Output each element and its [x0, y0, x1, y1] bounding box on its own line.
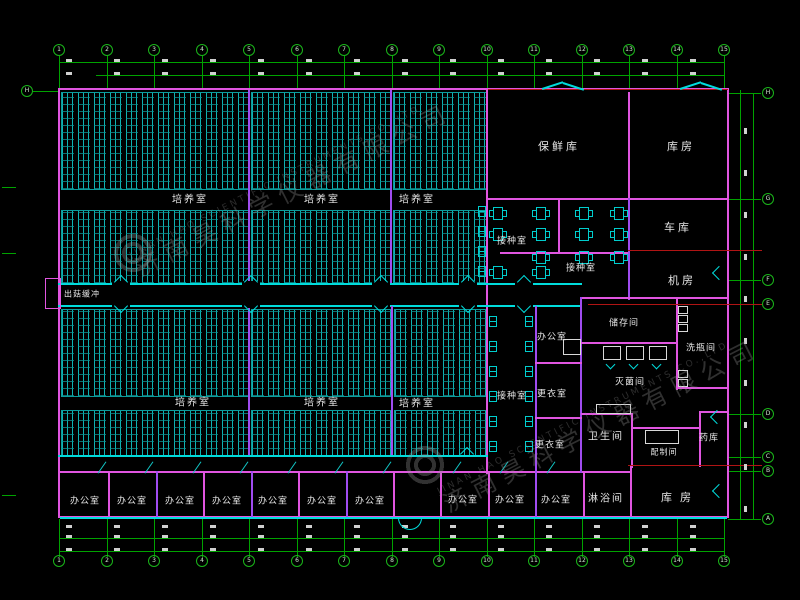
- table-icon: [493, 207, 503, 220]
- rack-hatch: [251, 309, 392, 397]
- wall: [628, 92, 630, 198]
- rack-hatch: [251, 210, 391, 284]
- room-label-office-small: 办公室: [537, 330, 567, 343]
- room-label-cultivation: 培养室: [172, 191, 208, 206]
- grid-line: [33, 91, 59, 92]
- room-label-cultivation: 培养室: [399, 395, 435, 410]
- grid-bubble-col: 1: [53, 44, 65, 56]
- table-icon: [579, 207, 589, 220]
- door-chevron-icon: [629, 360, 639, 370]
- grid-line: [2, 187, 16, 188]
- vestibule: [45, 278, 61, 309]
- grid-bubble-col: 4: [196, 555, 208, 567]
- wall: [630, 466, 632, 517]
- equipment-icon: [678, 306, 688, 314]
- grid-line: [59, 56, 60, 88]
- room-label-inoculation: 接种室: [566, 261, 596, 274]
- grid-bubble-col: 13: [623, 44, 635, 56]
- grid-bubble-col: 11: [528, 555, 540, 567]
- room-label-cultivation: 培养室: [175, 394, 211, 409]
- table-icon: [536, 207, 546, 220]
- corridor-line: [58, 283, 582, 285]
- rack-icon: [525, 366, 533, 377]
- rack-icon: [489, 391, 497, 402]
- grid-bubble-col: 9: [433, 555, 445, 567]
- door-chevron-icon: [712, 266, 726, 280]
- window-strip: [60, 517, 727, 519]
- dimension-line: [753, 94, 754, 519]
- wall: [156, 471, 158, 517]
- room-label-office: 办公室: [212, 494, 242, 507]
- rack-icon: [489, 341, 497, 352]
- dimension-text-row: [66, 59, 716, 62]
- door-chevron-icon: [606, 360, 616, 370]
- wall: [391, 306, 393, 457]
- entrance-arc-icon: [398, 518, 422, 530]
- rack-icon: [525, 316, 533, 327]
- wall: [727, 88, 729, 518]
- wall: [486, 88, 488, 474]
- room-label-office: 办公室: [355, 494, 385, 507]
- wall: [558, 198, 560, 254]
- rack-icon: [489, 366, 497, 377]
- room-label-storeroom-top: 库房: [667, 138, 695, 154]
- wall: [535, 362, 582, 364]
- room-label-office: 办公室: [541, 493, 571, 506]
- rack-hatch: [61, 410, 249, 457]
- rack-icon: [489, 416, 497, 427]
- grid-bubble-col: 10: [481, 44, 493, 56]
- room-label-medicine-store: 药库: [699, 431, 719, 444]
- table-icon: [536, 266, 546, 279]
- grid-bubble-col: 2: [101, 44, 113, 56]
- room-label-inoculation: 接种室: [497, 234, 527, 247]
- rack-icon: [478, 226, 486, 237]
- grid-line: [2, 495, 16, 496]
- grid-bubble-row: H: [21, 85, 33, 97]
- grid-line: [724, 519, 725, 557]
- grid-line: [724, 56, 725, 88]
- room-label-preparation: 配制间: [651, 447, 678, 458]
- cad-floor-plan: 1 2 3 4 5 6 7 8 9 10 11 12 13 14 15 1 2 …: [0, 0, 800, 600]
- wall-red: [628, 465, 762, 466]
- room-label-office: 办公室: [117, 494, 147, 507]
- wall: [583, 471, 585, 517]
- room-label-inoculation: 接种室: [497, 389, 527, 402]
- table-icon: [614, 228, 624, 241]
- room-label-office: 办公室: [307, 494, 337, 507]
- grid-bubble-col: 12: [576, 44, 588, 56]
- room-label-office: 办公室: [165, 494, 195, 507]
- dimension-line: [96, 75, 725, 76]
- grid-bubble-col: 15: [718, 555, 730, 567]
- rack-hatch: [393, 210, 487, 284]
- wall: [248, 306, 250, 457]
- room-label-office: 办公室: [70, 494, 100, 507]
- wall: [346, 471, 348, 517]
- wall: [500, 252, 628, 254]
- corridor-line: [58, 305, 582, 307]
- dimension-text-row: [66, 548, 721, 551]
- autoclave-icon: [649, 346, 667, 360]
- rack-hatch: [61, 309, 249, 397]
- grid-bubble-col: 6: [291, 44, 303, 56]
- rack-icon: [478, 206, 486, 217]
- grid-bubble-row: E: [762, 298, 774, 310]
- grid-bubble-row: G: [762, 193, 774, 205]
- wall: [535, 471, 537, 517]
- table-icon: [614, 251, 624, 264]
- grid-bubble-row: H: [762, 87, 774, 99]
- grid-bubble-col: 3: [148, 555, 160, 567]
- wall-red: [488, 89, 728, 90]
- grid-bubble-col: 11: [528, 44, 540, 56]
- grid-bubble-col: 14: [671, 555, 683, 567]
- room-label-storeroom-bottom: 库房: [661, 489, 699, 505]
- grid-bubble-col: 15: [718, 44, 730, 56]
- wall: [298, 471, 300, 517]
- grid-bubble-row: C: [762, 451, 774, 463]
- grid-bubble-col: 8: [386, 44, 398, 56]
- room-label-garage: 车库: [664, 219, 692, 235]
- rack-icon: [478, 246, 486, 257]
- room-label-shower: 淋浴间: [588, 490, 624, 505]
- room-label-storage-room: 储存间: [609, 316, 639, 329]
- grid-bubble-col: 5: [243, 555, 255, 567]
- grid-bubble-col: 12: [576, 555, 588, 567]
- wall: [488, 198, 728, 200]
- table-icon: [614, 207, 624, 220]
- wall: [580, 297, 728, 299]
- grid-bubble-col: 1: [53, 555, 65, 567]
- wall: [251, 471, 253, 517]
- dimension-text-row: [66, 535, 721, 538]
- rack-icon: [525, 416, 533, 427]
- wall-red: [588, 304, 762, 305]
- wall: [248, 90, 250, 283]
- door-chevron-icon: [517, 275, 531, 289]
- rack-icon: [525, 341, 533, 352]
- room-label-office: 办公室: [258, 494, 288, 507]
- grid-line: [2, 253, 16, 254]
- grid-bubble-row: A: [762, 513, 774, 525]
- equipment-icon: [678, 315, 688, 323]
- autoclave-icon: [603, 346, 621, 360]
- grid-bubble-col: 9: [433, 44, 445, 56]
- grid-bubble-col: 7: [338, 44, 350, 56]
- grid-bubble-col: 10: [481, 555, 493, 567]
- room-label-cultivation: 培养室: [304, 394, 340, 409]
- grid-line: [728, 519, 761, 520]
- grid-line: [728, 93, 761, 94]
- grid-bubble-col: 6: [291, 555, 303, 567]
- dimension-line: [740, 90, 741, 520]
- grid-bubble-col: 7: [338, 555, 350, 567]
- dimension-text-row: [66, 72, 716, 75]
- room-label-fresh-storage: 保鲜库: [538, 138, 580, 154]
- wall: [628, 198, 630, 300]
- wall: [393, 471, 395, 517]
- grid-bubble-row: F: [762, 274, 774, 286]
- rack-icon: [489, 441, 497, 452]
- door-chevron-icon: [652, 360, 662, 370]
- wall: [108, 471, 110, 517]
- door-chevron-icon: [517, 299, 531, 313]
- grid-bubble-row: B: [762, 465, 774, 477]
- equipment-icon: [678, 324, 688, 332]
- table-icon: [536, 251, 546, 264]
- grid-bubble-col: 5: [243, 44, 255, 56]
- wall: [203, 471, 205, 517]
- grid-line: [59, 519, 60, 557]
- grid-bubble-col: 8: [386, 555, 398, 567]
- wall: [581, 342, 678, 344]
- grid-bubble-col: 4: [196, 44, 208, 56]
- grid-bubble-col: 14: [671, 44, 683, 56]
- grid-bubble-col: 3: [148, 44, 160, 56]
- table-icon: [579, 228, 589, 241]
- equipment-icon: [645, 430, 679, 444]
- door-chevron-icon: [712, 484, 726, 498]
- dimension-text-col: [744, 100, 747, 512]
- room-label-buffer: 出菇缓冲: [64, 289, 100, 300]
- rack-hatch: [251, 410, 392, 457]
- rack-hatch: [61, 92, 249, 190]
- room-label-machine-room: 机房: [668, 272, 696, 288]
- room-label-cultivation: 培养室: [399, 191, 435, 206]
- grid-bubble-col: 13: [623, 555, 635, 567]
- wall-red: [628, 250, 762, 251]
- room-label-changing: 更衣室: [537, 387, 567, 400]
- grid-bubble-col: 2: [101, 555, 113, 567]
- wall: [631, 427, 701, 429]
- grid-bubble-row: D: [762, 408, 774, 420]
- table-icon: [536, 228, 546, 241]
- dimension-text-row: [66, 525, 721, 528]
- rack-icon: [478, 266, 486, 277]
- autoclave-icon: [626, 346, 644, 360]
- table-icon: [493, 266, 503, 279]
- rack-hatch: [394, 309, 487, 397]
- rack-icon: [489, 316, 497, 327]
